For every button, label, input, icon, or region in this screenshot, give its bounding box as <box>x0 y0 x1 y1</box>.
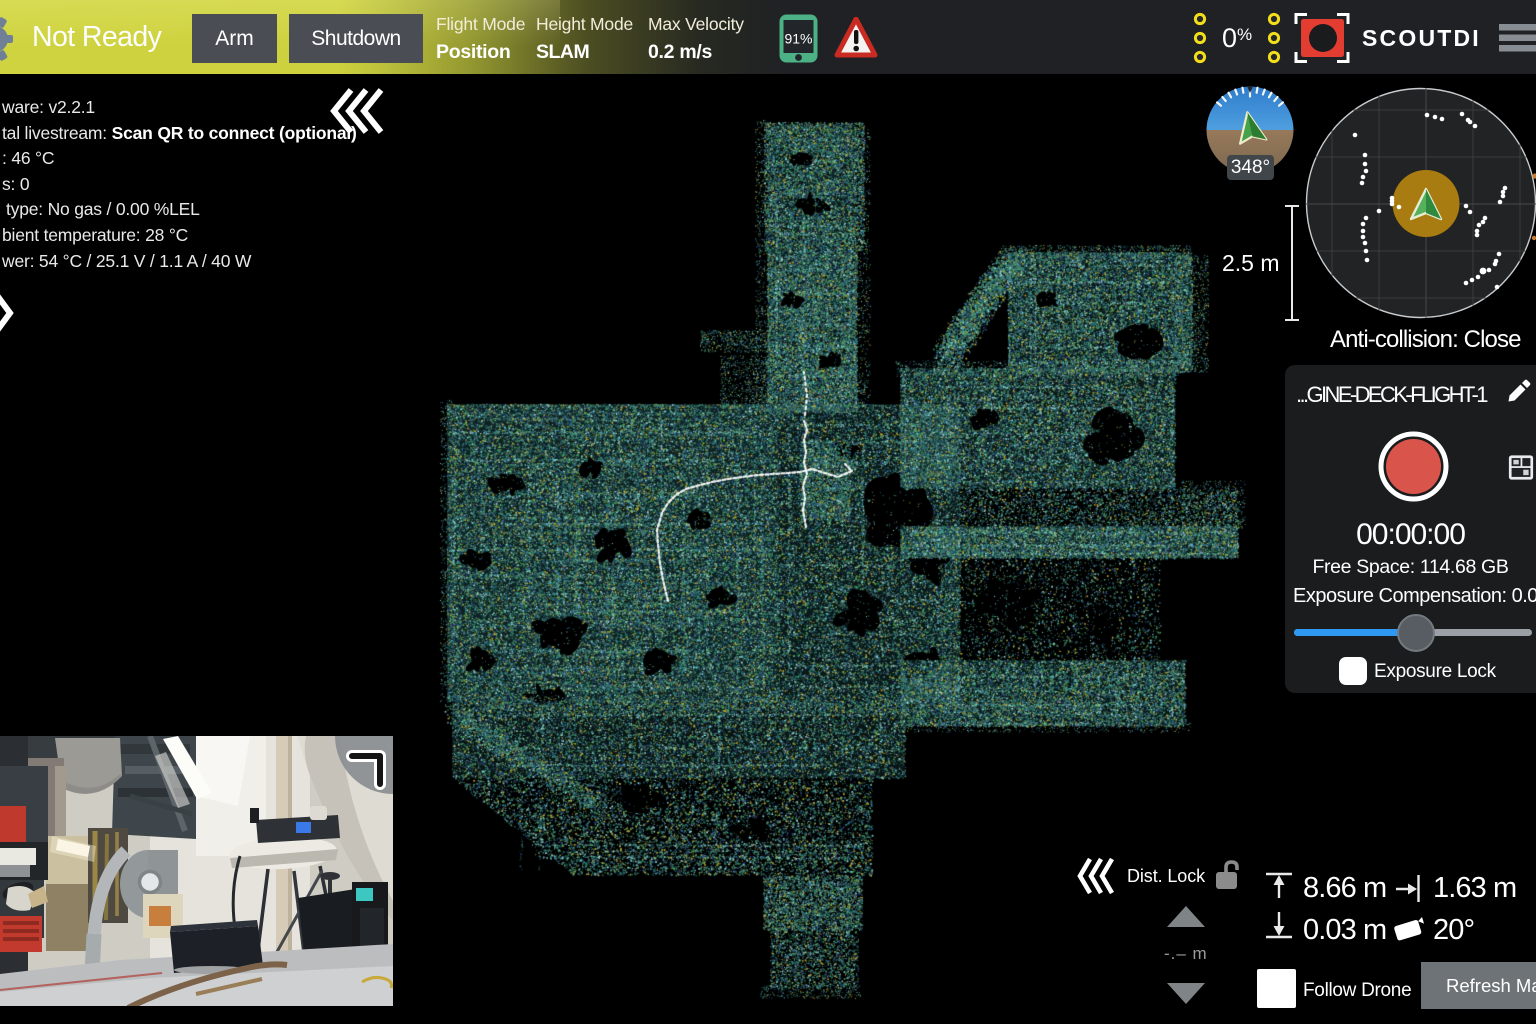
svg-text:91%: 91% <box>784 31 812 47</box>
